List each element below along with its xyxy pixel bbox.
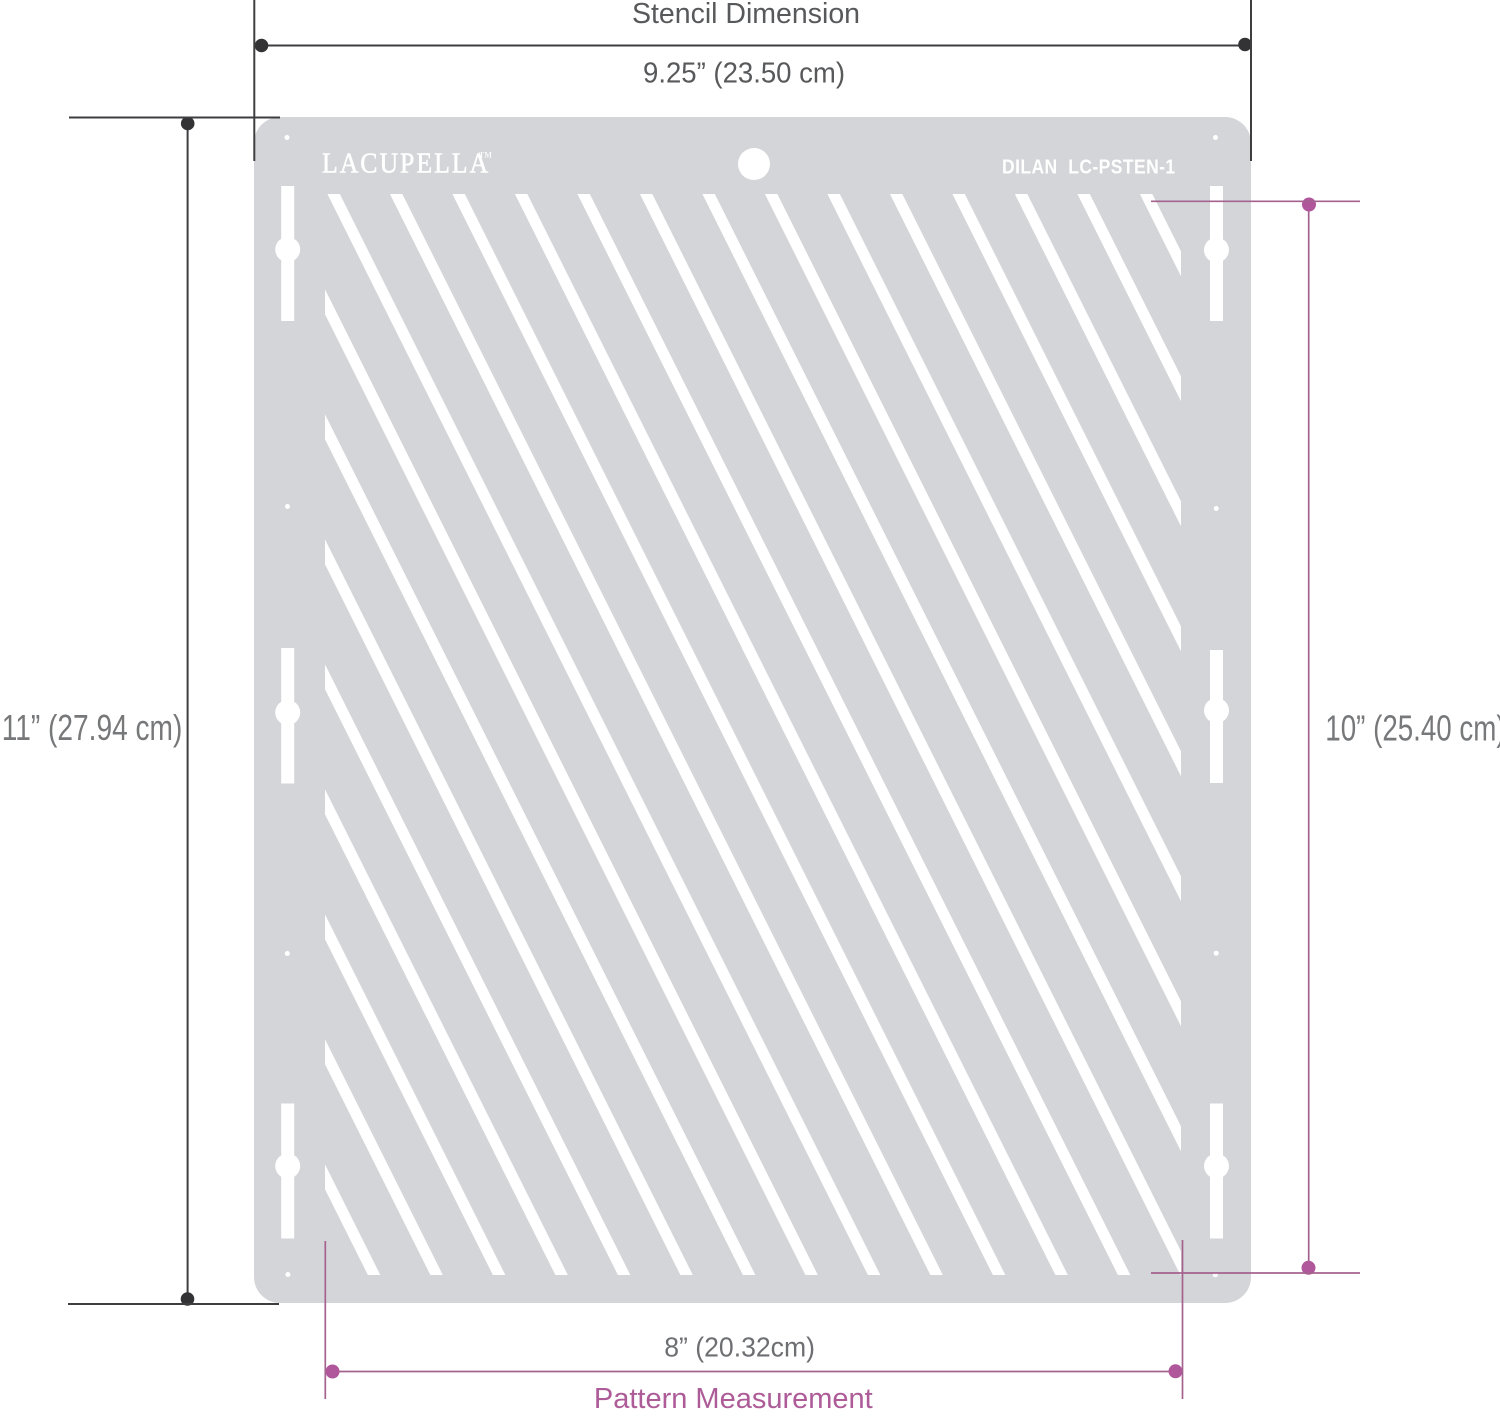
svg-text:Pattern Measurement: Pattern Measurement xyxy=(594,1383,873,1415)
svg-text:LACUPELLA: LACUPELLA xyxy=(322,147,490,179)
svg-text:Stencil Dimension: Stencil Dimension xyxy=(632,0,860,30)
svg-text:10” (25.40 cm): 10” (25.40 cm) xyxy=(1325,708,1500,749)
svg-text:11” (27.94 cm): 11” (27.94 cm) xyxy=(2,707,183,747)
svg-text:DILAN LC-PSTEN-1: DILAN LC-PSTEN-1 xyxy=(1002,155,1176,177)
svg-text:8” (20.32cm): 8” (20.32cm) xyxy=(664,1331,815,1363)
svg-text:™: ™ xyxy=(479,150,493,165)
svg-text:9.25” (23.50 cm): 9.25” (23.50 cm) xyxy=(643,56,845,89)
